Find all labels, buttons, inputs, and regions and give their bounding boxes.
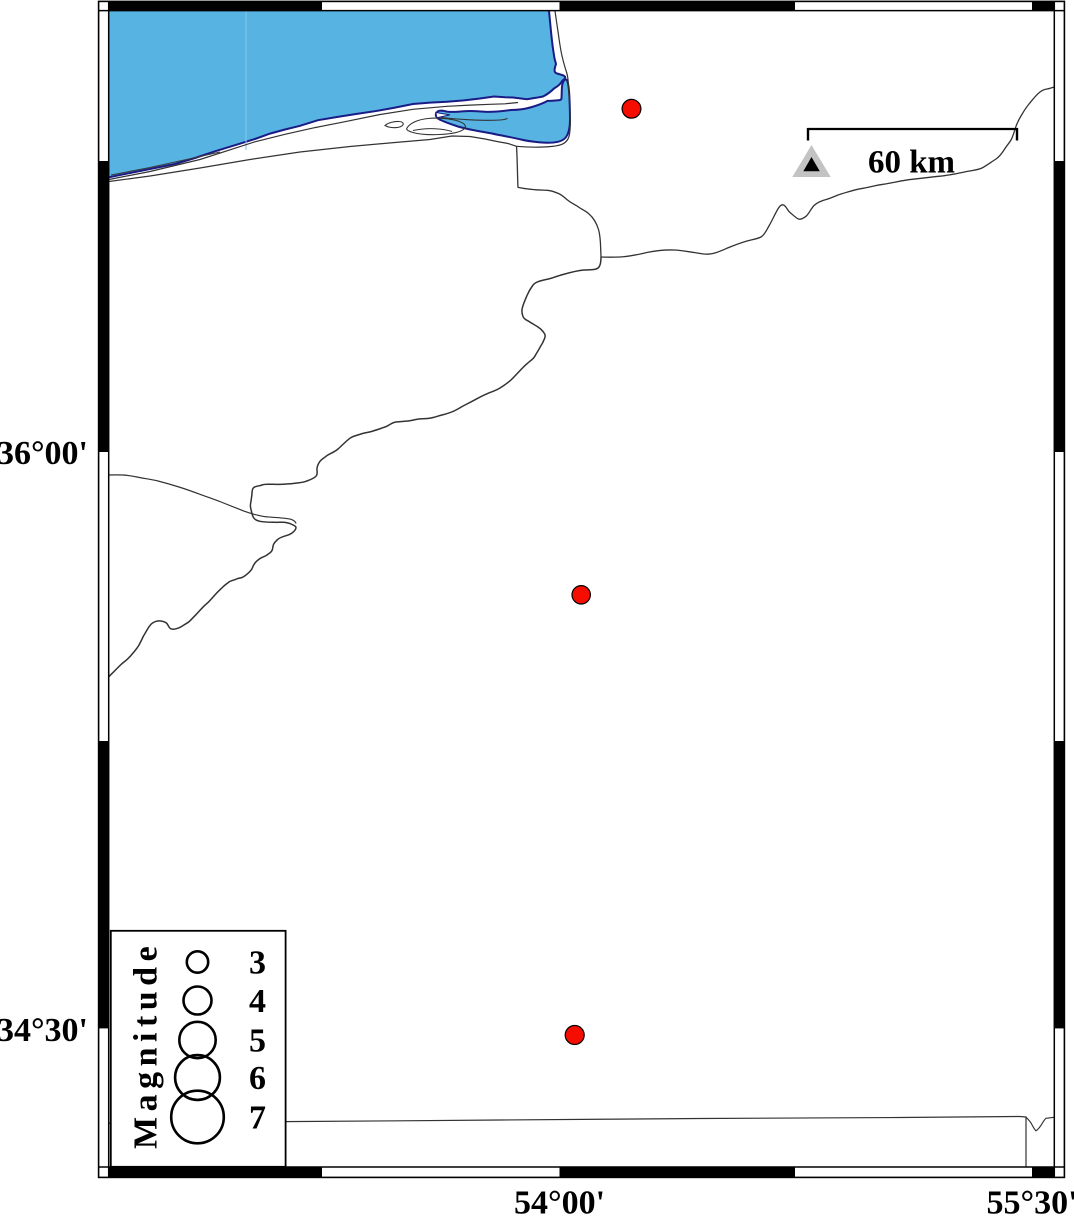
svg-text:3: 3: [249, 945, 266, 982]
svg-text:55°30': 55°30': [986, 1185, 1074, 1217]
svg-text:Magnitude: Magnitude: [128, 941, 165, 1149]
svg-text:4: 4: [249, 983, 266, 1020]
svg-text:54°00': 54°00': [514, 1185, 605, 1217]
svg-text:36°00': 36°00': [0, 435, 88, 472]
svg-text:5: 5: [249, 1023, 266, 1060]
svg-text:34°30': 34°30': [0, 1012, 88, 1049]
svg-text:6: 6: [249, 1060, 266, 1097]
svg-text:7: 7: [249, 1100, 266, 1137]
svg-text:60 km: 60 km: [868, 145, 955, 181]
